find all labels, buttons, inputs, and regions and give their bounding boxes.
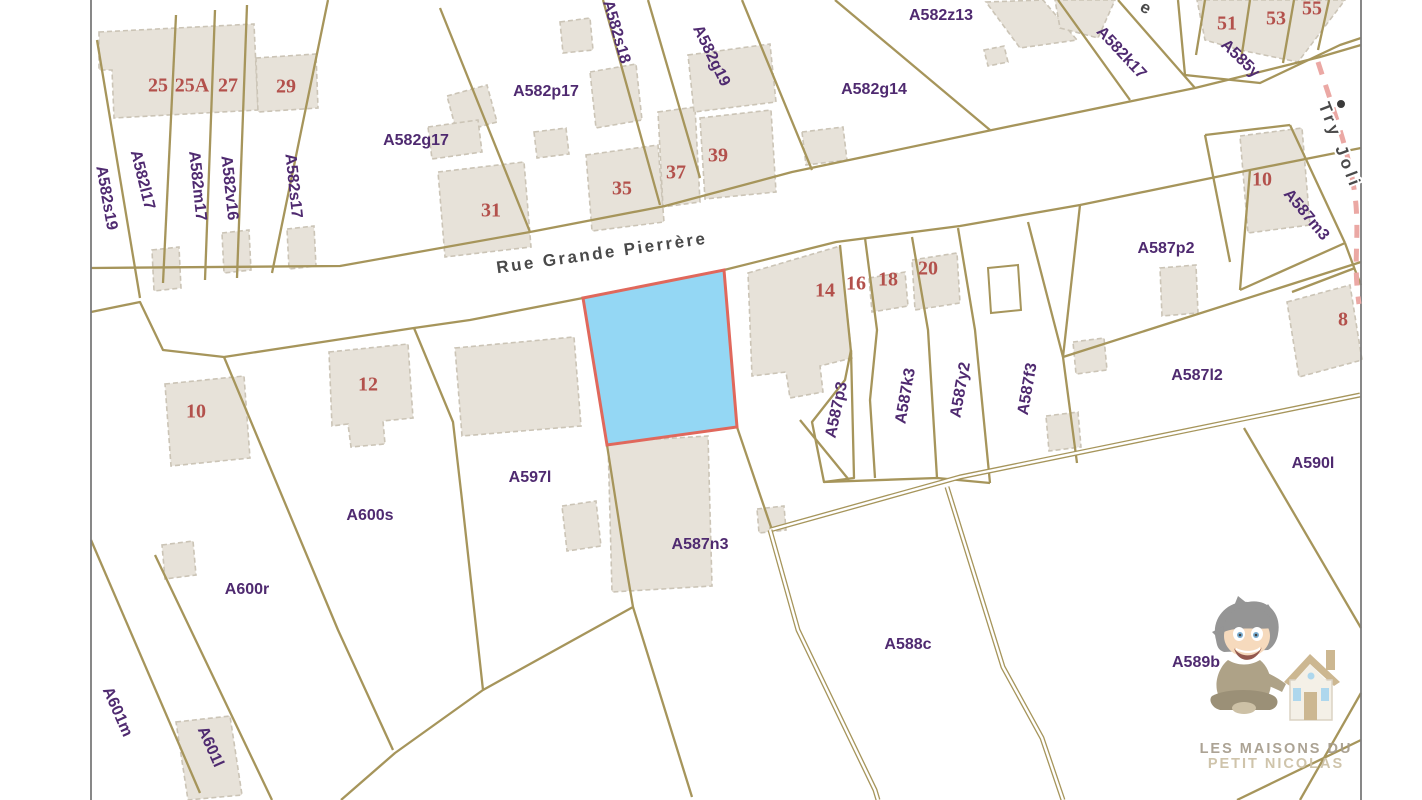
parcel-boundary-line [91, 540, 200, 793]
building-footprint [608, 436, 712, 592]
house-number: 12 [358, 374, 378, 396]
parcel-label-a601m: A601m [99, 684, 136, 739]
parcel-label-a587p2: A587p2 [1138, 240, 1195, 257]
agency-logo: LES MAISONS DU PETIT NICOLAS [1198, 592, 1354, 772]
building-footprint [562, 501, 601, 551]
building-footprint [560, 18, 593, 53]
house-number: 29 [276, 76, 296, 98]
parcel-label-a582k17: A582k17 [1093, 23, 1150, 82]
building-footprint [1287, 285, 1362, 377]
selected-parcel[interactable] [583, 270, 737, 445]
parcel-boundary-line [1205, 135, 1230, 262]
building-footprint [99, 24, 258, 118]
parcel-label-a587n3: A587n3 [672, 536, 729, 553]
house-number: 35 [612, 178, 632, 200]
parcel-label-a582g14: A582g14 [841, 81, 907, 98]
building-footprint [988, 265, 1021, 313]
parcel-label-a587y2: A587y2 [947, 361, 974, 419]
parcel-label-a587p3: A587p3 [822, 380, 850, 439]
house-number: 31 [481, 200, 501, 222]
logo-illustration [1198, 592, 1354, 737]
parcel-boundary-line [958, 228, 990, 483]
logo-text-line2: PETIT NICOLAS [1198, 757, 1354, 772]
house-number: 51 [1217, 13, 1237, 35]
building-footprint [287, 226, 316, 269]
house-number: 18 [878, 269, 898, 291]
parcel-label-a582g17: A582g17 [383, 132, 449, 149]
building-footprint [455, 337, 581, 436]
street-label-street-fragment: e [1137, 0, 1156, 19]
parcel-label-a582s19: A582s19 [92, 164, 120, 231]
house-number: 16 [846, 273, 866, 295]
house-number: 14 [815, 280, 835, 302]
parcel-boundary-line [1063, 205, 1080, 357]
house-number: 25A [175, 75, 210, 97]
cadastral-map: A582s19A582l17A582m17A582v16A582s17A582g… [0, 0, 1422, 800]
parcel-boundary-line [737, 427, 772, 530]
building-footprint [152, 247, 181, 291]
house-icon [1284, 650, 1340, 720]
parcel-label-a587k3: A587k3 [892, 367, 919, 425]
path-double-line [947, 487, 1063, 800]
street-label-try-joli: Try Joli [1315, 100, 1366, 192]
parcel-label-a582z13: A582z13 [909, 7, 973, 24]
cartoon-boy-icon [1210, 596, 1286, 714]
house-number: 20 [918, 258, 938, 280]
logo-text-line1: LES MAISONS DU [1198, 742, 1354, 757]
building-footprint [534, 128, 569, 158]
parcel-label-a587l2: A587l2 [1171, 367, 1223, 384]
parcel-label-a587f3: A587f3 [1015, 362, 1041, 417]
parcel-label-a582m17: A582m17 [185, 150, 209, 222]
building-footprint [984, 46, 1008, 66]
parcel-label-a582l17: A582l17 [127, 149, 158, 212]
path-double-line [770, 530, 878, 800]
house-number: 53 [1266, 8, 1286, 30]
parcel-label-a600r: A600r [225, 581, 269, 598]
parcel-boundary-line [1118, 0, 1195, 88]
house-number: 10 [186, 401, 206, 423]
parcel-label-a588c: A588c [884, 636, 931, 653]
parcel-label-a600s: A600s [346, 507, 393, 524]
house-number: 39 [708, 145, 728, 167]
building-footprint [590, 64, 642, 128]
parcel-boundary-line [865, 238, 877, 478]
house-number: 8 [1338, 309, 1348, 331]
house-number: 37 [666, 162, 686, 184]
parcel-label-a582p17: A582p17 [513, 83, 579, 100]
parcel-label-a582v16: A582v16 [217, 155, 241, 221]
parcel-label-a590l: A590l [1292, 455, 1335, 472]
building-footprint [748, 246, 852, 398]
building-footprint [1160, 265, 1198, 316]
building-footprint [162, 541, 196, 579]
house-number: 25 [148, 75, 168, 97]
house-number: 10 [1252, 169, 1272, 191]
house-number: 27 [218, 75, 238, 97]
highlight-layer [583, 270, 737, 445]
street-marker-dot [1336, 99, 1346, 109]
parcel-boundary-line [341, 607, 633, 800]
house-number: 55 [1302, 0, 1322, 20]
parcel-label-a582s18: A582s18 [599, 0, 633, 66]
parcel-label-a597l: A597l [509, 469, 552, 486]
